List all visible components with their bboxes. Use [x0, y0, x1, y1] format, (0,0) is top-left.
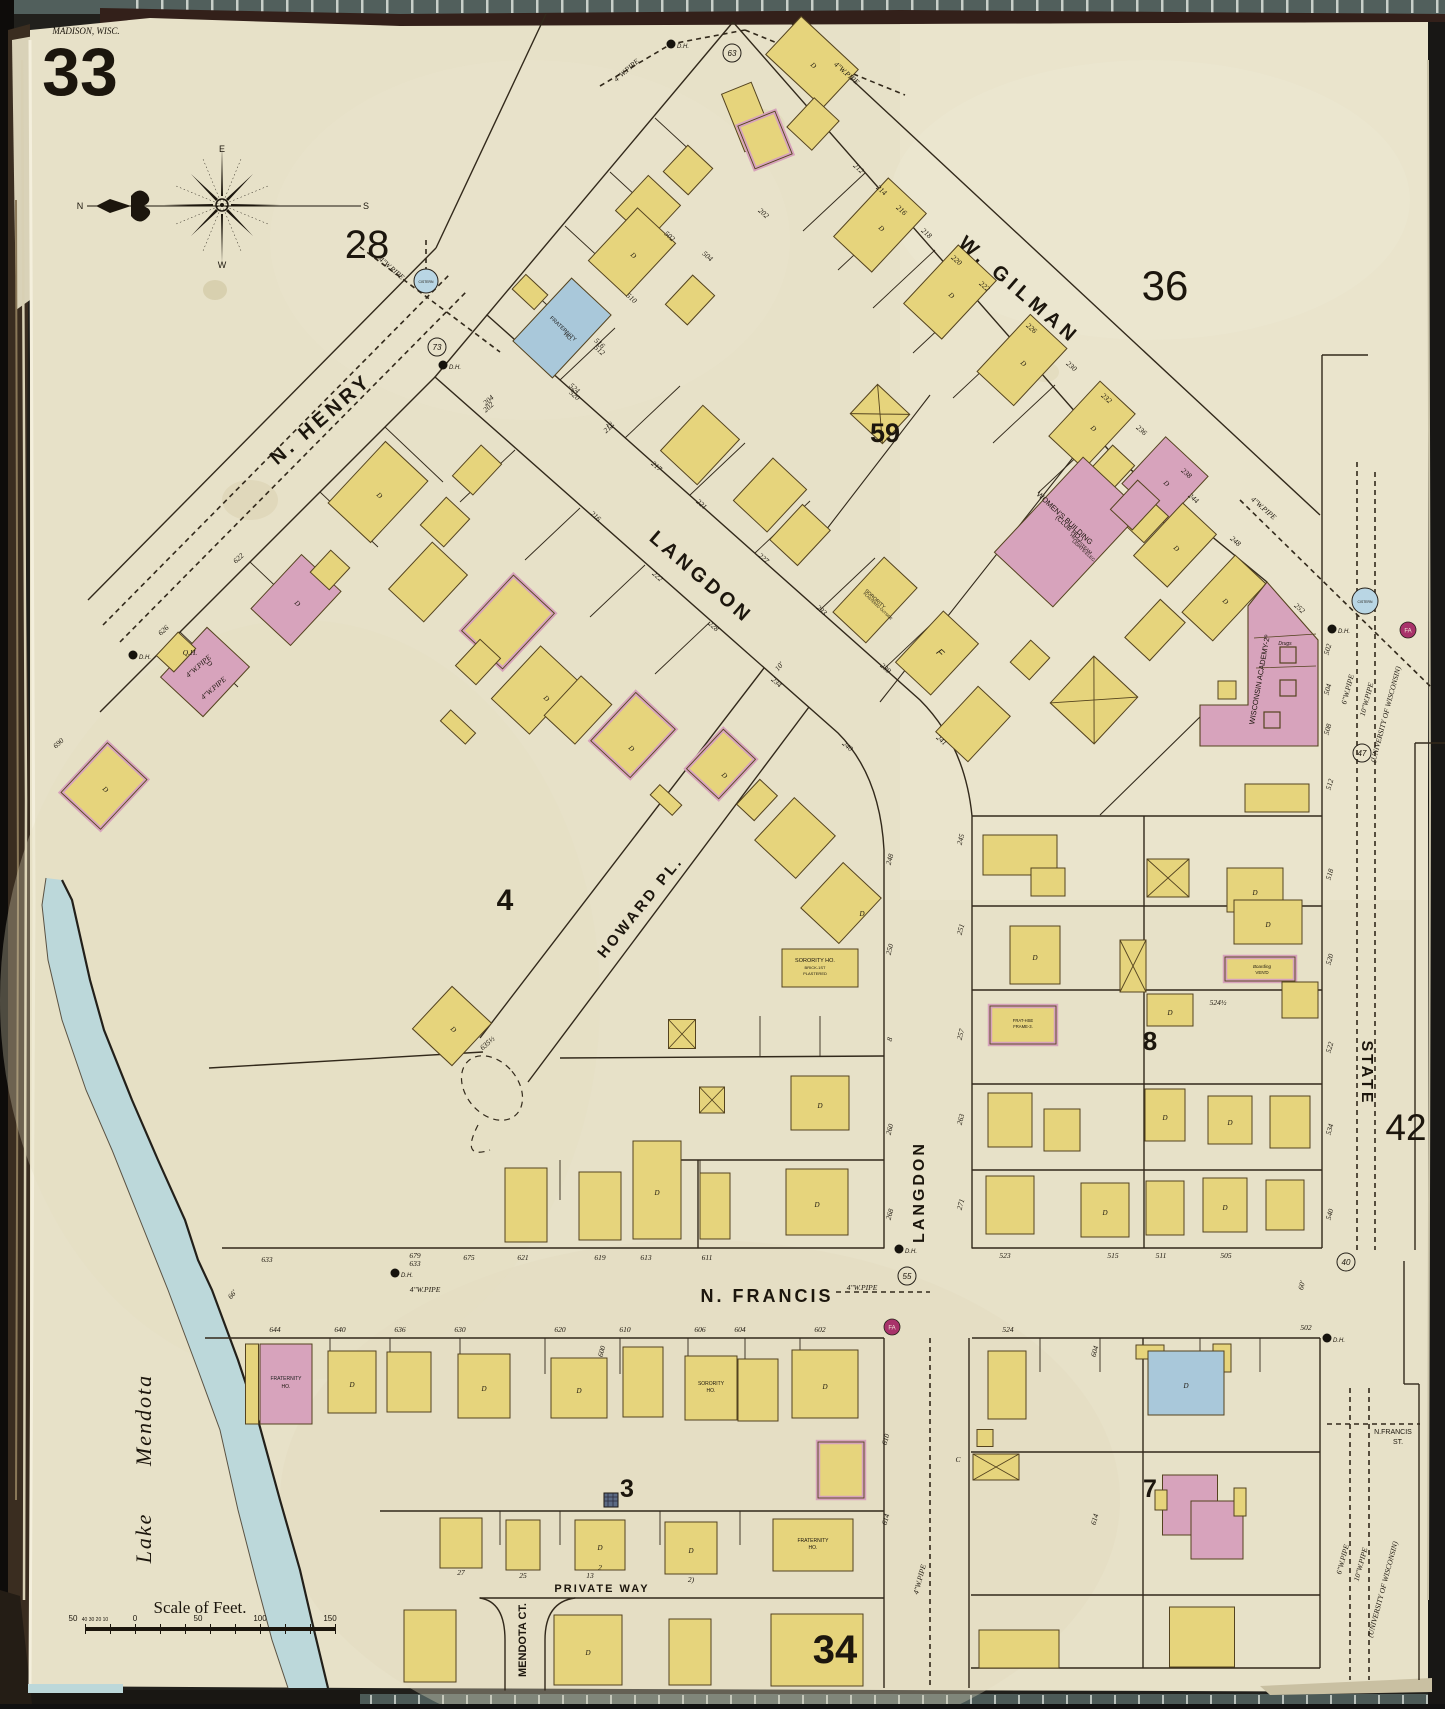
svg-text:D.H.: D.H.: [1333, 1338, 1345, 1344]
svg-text:502: 502: [1300, 1323, 1312, 1332]
svg-text:47: 47: [1358, 749, 1367, 758]
svg-text:D: D: [1101, 1209, 1107, 1217]
svg-text:604: 604: [734, 1325, 746, 1334]
svg-text:640: 640: [334, 1325, 346, 1334]
svg-text:D.H.: D.H.: [677, 44, 689, 50]
svg-text:524: 524: [1002, 1325, 1014, 1334]
svg-text:D: D: [1264, 921, 1270, 929]
svg-text:42: 42: [1385, 1107, 1426, 1148]
svg-text:13: 13: [586, 1571, 594, 1580]
svg-text:D: D: [575, 1387, 581, 1395]
svg-text:25: 25: [519, 1571, 527, 1580]
svg-text:Q.H.: Q.H.: [183, 648, 198, 657]
svg-text:613: 613: [640, 1253, 652, 1262]
svg-text:D: D: [1166, 1009, 1172, 1017]
svg-text:D: D: [1031, 954, 1037, 962]
svg-text:100: 100: [253, 1614, 267, 1623]
svg-text:E: E: [219, 144, 225, 154]
svg-text:S: S: [363, 201, 369, 211]
svg-text:SORORITY: SORORITY: [698, 1381, 725, 1387]
svg-text:59: 59: [870, 418, 900, 448]
svg-text:73: 73: [433, 343, 442, 352]
svg-text:D: D: [596, 1544, 602, 1552]
svg-text:D: D: [858, 910, 864, 918]
svg-text:N: N: [77, 201, 84, 211]
svg-text:620: 620: [554, 1325, 566, 1334]
svg-text:D: D: [1251, 889, 1257, 897]
svg-text:FRAME-3.: FRAME-3.: [1013, 1024, 1033, 1029]
svg-text:PLASTERED: PLASTERED: [803, 971, 827, 976]
svg-text:SORORITY HO.: SORORITY HO.: [795, 958, 835, 964]
svg-text:HO.: HO.: [809, 1545, 818, 1551]
svg-text:Drugs: Drugs: [1278, 641, 1292, 647]
svg-text:D: D: [813, 1201, 819, 1209]
svg-text:610: 610: [619, 1325, 631, 1334]
svg-text:HO.: HO.: [707, 1388, 716, 1394]
svg-text:4: 4: [497, 884, 514, 917]
svg-text:Mendota: Mendota: [131, 1374, 156, 1467]
svg-text:633: 633: [409, 1259, 421, 1268]
svg-text:40 30 20 10: 40 30 20 10: [82, 1617, 109, 1623]
svg-text:D.H.: D.H.: [905, 1249, 917, 1255]
svg-text:D: D: [1226, 1119, 1232, 1127]
svg-text:FA: FA: [1404, 629, 1411, 635]
svg-text:BRICK-1ST: BRICK-1ST: [805, 965, 826, 970]
svg-text:8: 8: [1143, 1026, 1157, 1056]
svg-text:PRIVATE WAY: PRIVATE WAY: [554, 1583, 649, 1595]
svg-text:Lake: Lake: [131, 1513, 156, 1565]
svg-text:D: D: [1221, 1204, 1227, 1212]
svg-text:611: 611: [702, 1253, 713, 1262]
svg-text:50: 50: [194, 1614, 203, 1623]
svg-text:50: 50: [69, 1614, 78, 1623]
svg-text:D: D: [687, 1547, 693, 1555]
svg-text:633: 633: [261, 1255, 273, 1264]
svg-text:63: 63: [728, 49, 737, 58]
svg-text:2: 2: [598, 1563, 602, 1572]
svg-text:D.H.: D.H.: [449, 365, 461, 371]
svg-text:D: D: [1182, 1382, 1188, 1390]
svg-text:602: 602: [814, 1325, 826, 1334]
svg-text:511: 511: [1156, 1251, 1167, 1260]
svg-text:FA: FA: [888, 1326, 895, 1332]
svg-text:D: D: [821, 1383, 827, 1391]
svg-text:D: D: [584, 1649, 590, 1657]
svg-text:N.FRANCIS: N.FRANCIS: [1374, 1429, 1412, 1436]
svg-text:515: 515: [1107, 1251, 1119, 1260]
svg-text:D: D: [348, 1381, 354, 1389]
svg-text:N. FRANCIS: N. FRANCIS: [701, 1286, 834, 1306]
svg-text:644: 644: [269, 1325, 281, 1334]
svg-text:55: 55: [903, 1272, 912, 1281]
svg-text:D.H.: D.H.: [1338, 629, 1350, 635]
svg-text:621: 621: [517, 1253, 528, 1262]
svg-text:Boarding: Boarding: [1253, 964, 1272, 969]
svg-text:3: 3: [620, 1475, 634, 1503]
svg-text:D.H.: D.H.: [401, 1273, 413, 1279]
svg-text:619: 619: [594, 1253, 606, 1262]
svg-text:D: D: [653, 1189, 659, 1197]
svg-text:523: 523: [999, 1251, 1011, 1260]
svg-text:D.H.: D.H.: [139, 655, 151, 661]
svg-text:636: 636: [394, 1325, 406, 1334]
svg-text:675: 675: [463, 1253, 475, 1262]
svg-text:34: 34: [813, 1628, 858, 1672]
svg-text:36: 36: [1142, 262, 1189, 309]
svg-text:D: D: [1161, 1114, 1167, 1122]
svg-text:FRATERNITY: FRATERNITY: [797, 1538, 829, 1544]
svg-text:27: 27: [457, 1568, 465, 1577]
svg-text:MENDOTA CT.: MENDOTA CT.: [517, 1603, 529, 1677]
svg-text:505: 505: [1220, 1251, 1232, 1260]
svg-text:FRATERNITY: FRATERNITY: [270, 1376, 302, 1382]
svg-text:7: 7: [1143, 1475, 1157, 1503]
svg-text:FRAT-HSE: FRAT-HSE: [1013, 1018, 1034, 1023]
svg-text:33: 33: [42, 34, 118, 110]
svg-text:ST.: ST.: [1393, 1439, 1403, 1446]
svg-text:524½: 524½: [1210, 998, 1227, 1007]
svg-text:CISTERN: CISTERN: [1358, 600, 1373, 604]
svg-text:HO.: HO.: [282, 1384, 291, 1390]
svg-text:W: W: [218, 260, 227, 270]
svg-text:2): 2): [688, 1575, 695, 1584]
svg-text:LANGDON: LANGDON: [911, 1141, 928, 1243]
svg-text:MADISON, WISC.: MADISON, WISC.: [51, 26, 119, 36]
svg-text:4"W.PIPE: 4"W.PIPE: [847, 1283, 878, 1292]
svg-text:630: 630: [454, 1325, 466, 1334]
svg-text:VEN'D: VEN'D: [1255, 970, 1269, 975]
svg-text:606: 606: [694, 1325, 706, 1334]
svg-text:CISTERN: CISTERN: [419, 280, 434, 284]
svg-text:40: 40: [1342, 1258, 1351, 1267]
svg-text:4"W.PIPE: 4"W.PIPE: [410, 1285, 441, 1294]
svg-text:150: 150: [323, 1614, 337, 1623]
svg-text:0: 0: [133, 1614, 138, 1623]
svg-text:STATE: STATE: [1358, 1040, 1375, 1105]
svg-text:D: D: [480, 1385, 486, 1393]
svg-text:D: D: [816, 1102, 822, 1110]
